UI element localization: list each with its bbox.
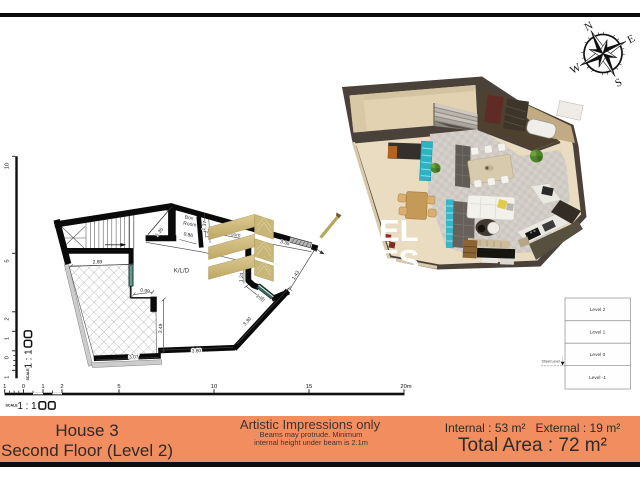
svg-text:3.30: 3.30 <box>242 316 253 327</box>
svg-text:SCALE: SCALE <box>6 404 19 408</box>
svg-text:3.80: 3.80 <box>192 348 202 354</box>
svg-text:2: 2 <box>5 317 11 320</box>
svg-text:S: S <box>613 76 624 89</box>
svg-text:5: 5 <box>117 384 120 390</box>
svg-text:0: 0 <box>22 384 25 390</box>
svg-text:5: 5 <box>5 259 11 262</box>
svg-text:15: 15 <box>306 384 312 390</box>
svg-text:2: 2 <box>60 384 63 390</box>
svg-text:Level -1: Level -1 <box>589 375 606 381</box>
svg-text:10: 10 <box>5 163 11 169</box>
svg-text:1: 1 <box>5 337 11 340</box>
svg-text:E: E <box>625 32 637 46</box>
svg-text:SCALE: SCALE <box>26 368 30 381</box>
svg-text:ES: ES <box>378 243 419 278</box>
svg-text:3.07: 3.07 <box>129 354 139 360</box>
svg-text:1 : 1: 1 : 1 <box>18 401 37 412</box>
svg-text:Level 2: Level 2 <box>590 307 606 313</box>
svg-text:2.89: 2.89 <box>93 259 103 265</box>
svg-text:0.86: 0.86 <box>183 231 194 239</box>
svg-text:Level 0: Level 0 <box>590 352 606 358</box>
svg-text:Street Level: Street Level <box>542 360 560 364</box>
svg-text:1.23: 1.23 <box>238 272 245 282</box>
svg-text:1.70: 1.70 <box>254 293 265 304</box>
svg-text:10: 10 <box>211 384 217 390</box>
svg-text:1: 1 <box>41 384 44 390</box>
svg-text:Level 1: Level 1 <box>590 330 606 336</box>
svg-text:K/L/D: K/L/D <box>174 268 190 275</box>
svg-text:N: N <box>582 19 595 33</box>
svg-text:3.49: 3.49 <box>158 323 165 333</box>
svg-text:1: 1 <box>5 376 11 379</box>
svg-text:1 : 1: 1 : 1 <box>24 349 35 368</box>
svg-text:1.43: 1.43 <box>291 270 301 281</box>
svg-text:W: W <box>568 61 583 77</box>
svg-text:20m: 20m <box>400 384 411 390</box>
svg-text:1: 1 <box>3 384 6 390</box>
svg-text:Room: Room <box>183 221 197 229</box>
svg-text:0: 0 <box>5 356 11 359</box>
